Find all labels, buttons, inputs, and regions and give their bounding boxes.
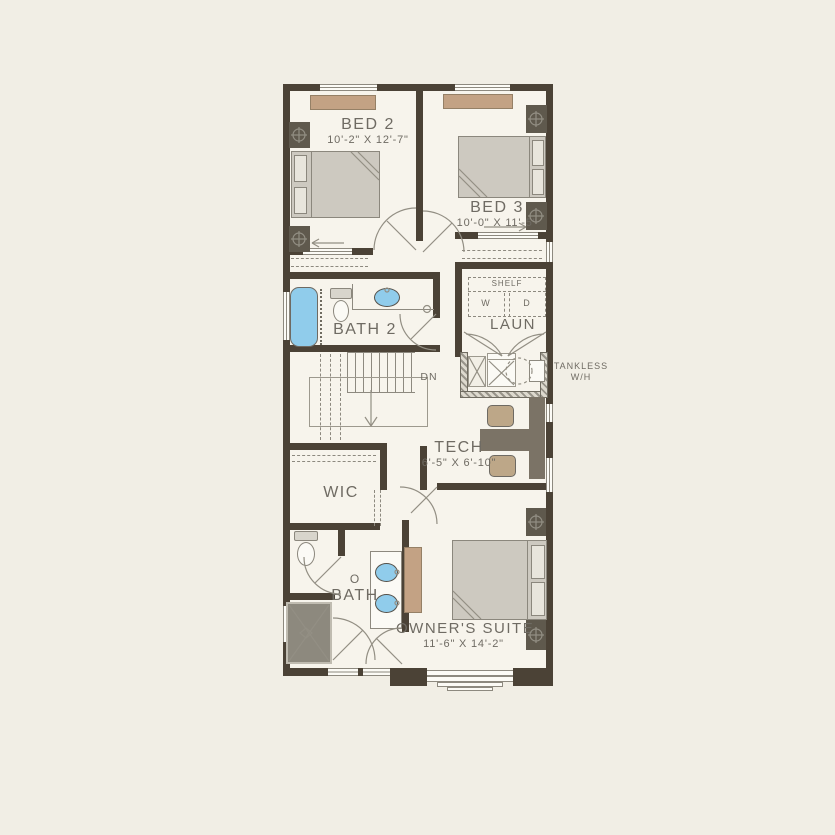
wall-segment [283,443,387,450]
nightstand [289,122,310,148]
laundry-divider [509,293,510,317]
room-label-wic: WIC [310,483,372,502]
bed-seam-line [311,151,312,218]
floorplan-page: { "plan": { "bed2": {"name": "BED 2", "d… [0,0,835,835]
toilet-tank [294,531,318,541]
room-label-tech: TECH 6'-5" X 6'-10" [408,438,510,470]
wall-segment [455,262,462,357]
tankless-wh-label: TANKLESS W/H [552,361,610,383]
chair [487,405,514,427]
toilet-bowl-icon [297,542,315,566]
owner-bath-line2: BATH [317,586,393,605]
room-label-bed3: BED 3 10'-0" X 11'-5" [437,198,557,230]
wall-segment [455,232,478,239]
owner-suite-dims: 11'-6" X 14'-2" [396,638,531,651]
bathtub [290,287,318,347]
bay-window [427,670,513,682]
dresser [443,94,513,109]
room-label-owner-suite: OWNER'S SUITE 11'-6" X 14'-2" [396,620,531,651]
utility-cabinet [468,356,486,387]
wall-segment [283,523,380,530]
sliding-door [478,232,538,239]
wall-segment [283,668,328,676]
water-heater-unit [529,360,545,382]
bed-seam-line [529,136,530,198]
pillow [531,582,545,616]
closet-shelf-line [462,250,542,251]
wall-segment [433,279,440,318]
stair-dashed-run [320,354,321,440]
wall-segment [455,262,553,269]
window [546,404,553,422]
window [546,242,553,262]
laundry-divider [468,291,546,292]
wall-segment [352,248,373,255]
window [363,668,390,676]
closet-shelf-line [462,258,542,259]
pillow [294,155,307,182]
room-label-bed2: BED 2 10'-2" X 12'-7" [308,115,428,147]
dresser [404,547,422,613]
wall-segment [437,483,546,490]
laundry-divider [504,293,505,317]
nightstand [526,105,547,133]
closet-shelf-line [291,266,368,267]
wic-rod-line [292,455,376,456]
stair-dashed-run [340,354,341,440]
tankless-line2: W/H [552,372,610,383]
washer-label: W [477,298,495,309]
stairs-dn-label: DN [417,371,441,384]
window [328,668,358,676]
bed3-name: BED 3 [437,198,557,217]
pillow [294,187,307,214]
washer-control-strip [487,353,516,360]
toilet-tank [330,288,352,299]
owner-bath-line1: O [317,572,393,586]
window [546,458,553,492]
nightstand [526,508,546,536]
wic-name: WIC [310,483,372,502]
wall-segment [538,232,546,239]
wic-rod-line [380,490,381,526]
wic-rod-line [374,490,375,526]
desk [529,397,545,479]
bath2-name: BATH 2 [320,320,410,339]
bay-window-sill [447,687,493,691]
shower [286,602,332,664]
tech-dims: 6'-5" X 6'-10" [408,457,510,470]
closet-shelf-line [291,258,368,259]
dresser [310,95,376,110]
window [320,84,377,91]
tech-name: TECH [408,438,510,457]
room-label-owner-bath: O BATH [317,572,393,606]
shelf-label: SHELF [482,279,532,289]
tankless-line1: TANKLESS [552,361,610,372]
wall-segment [283,84,290,676]
wall-segment [380,443,387,490]
dryer-label: D [518,298,536,309]
room-label-bath2: BATH 2 [320,320,410,339]
nightstand [289,226,310,252]
stair-landing-outline [309,377,428,427]
stair-dashed-run [330,354,331,440]
pillow [532,140,544,166]
room-label-laundry: LAUN [478,316,548,334]
bed-seam-line [527,540,528,620]
toilet-bowl-icon [333,300,349,322]
laundry-name: LAUN [478,316,548,334]
bed3-dims: 10'-0" X 11'-5" [437,217,557,230]
pillow [531,545,545,579]
wall-segment [338,530,345,556]
sliding-door [303,248,352,255]
bed2-dims: 10'-2" X 12'-7" [308,134,428,147]
bed2-name: BED 2 [308,115,428,134]
wall-segment [513,668,553,686]
window [283,292,290,340]
wic-rod-line [292,461,376,462]
wall-segment [416,91,423,241]
pillow [532,169,544,195]
window [455,84,510,91]
wall-segment [390,668,427,686]
wall-segment [283,272,440,279]
owner-suite-name: OWNER'S SUITE [396,620,531,638]
sink-icon [374,288,400,307]
